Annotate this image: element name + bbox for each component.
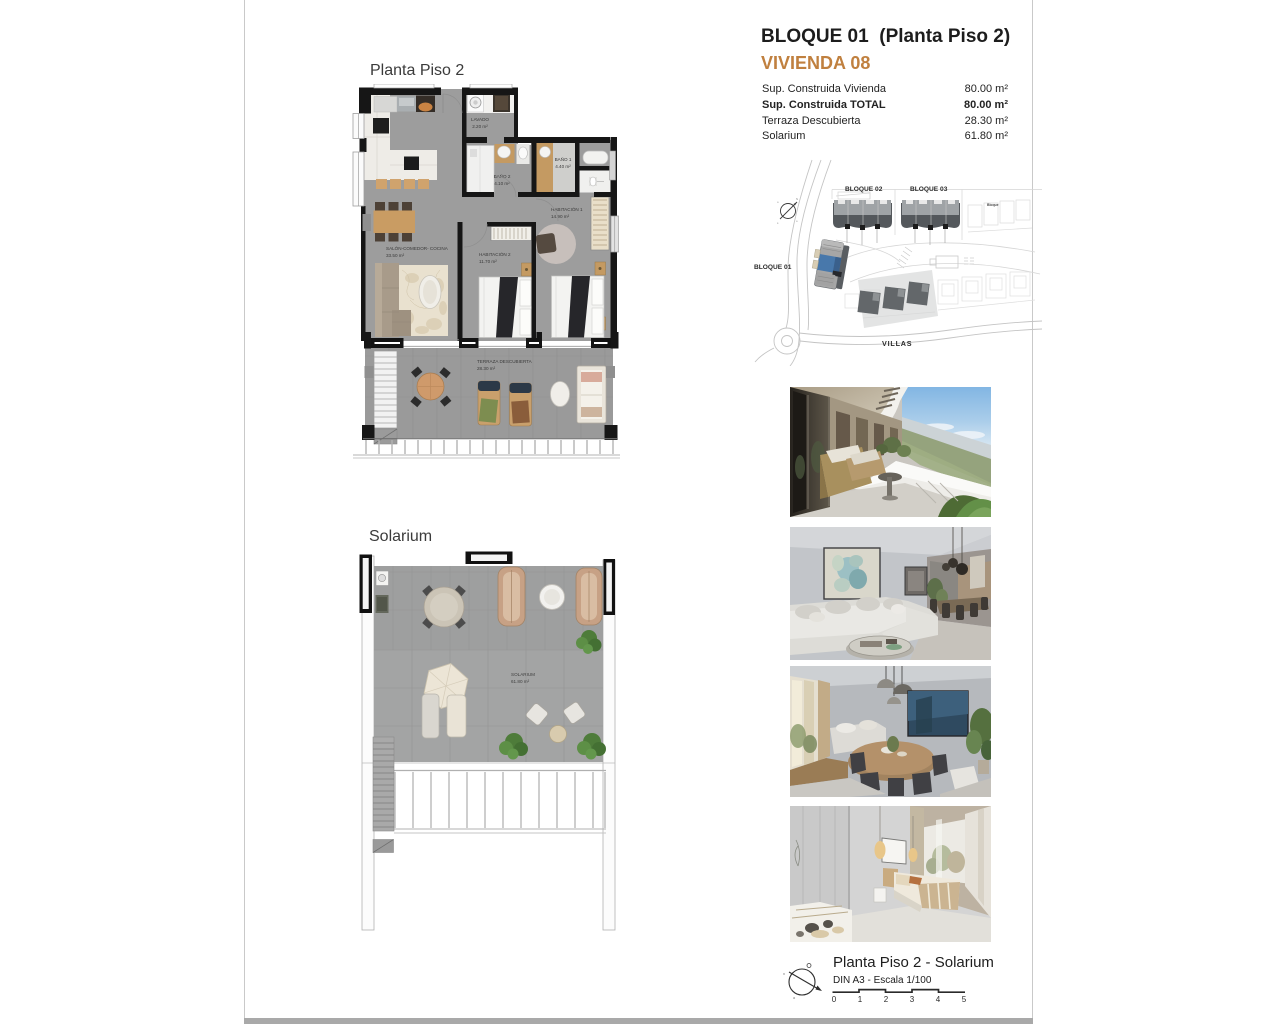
svg-text:28.30 m²: 28.30 m²	[477, 366, 496, 371]
svg-text:SOLARIUM: SOLARIUM	[511, 672, 535, 677]
svg-text:BLOQUE 01: BLOQUE 01	[754, 264, 792, 271]
svg-text:BLOQUE 02: BLOQUE 02	[845, 186, 883, 193]
svg-text:2.20 m²: 2.20 m²	[472, 124, 488, 129]
svg-text:HABITACIÓN 2: HABITACIÓN 2	[479, 251, 511, 257]
svg-text:4: 4	[936, 995, 941, 1004]
svg-text:x: x	[783, 971, 785, 976]
svg-text:2: 2	[884, 995, 889, 1004]
svg-text:Bloque: Bloque	[987, 203, 999, 207]
svg-text:14.90 m²: 14.90 m²	[551, 214, 570, 219]
svg-text:N: N	[796, 197, 798, 201]
svg-text:VILLAS: VILLAS	[882, 339, 912, 348]
svg-text:4.40 m²: 4.40 m²	[555, 164, 571, 169]
svg-text:o: o	[793, 995, 796, 1000]
svg-text:LAVADO: LAVADO	[471, 117, 489, 122]
svg-text:3: 3	[910, 995, 915, 1004]
svg-text:o: o	[796, 219, 798, 223]
svg-text:11.70 m²: 11.70 m²	[479, 259, 497, 264]
svg-text:1: 1	[858, 995, 863, 1004]
svg-text:SALÓN-COMEDOR- COCINA: SALÓN-COMEDOR- COCINA	[386, 245, 449, 251]
svg-text:5: 5	[962, 995, 967, 1004]
svg-text:BAÑO 1: BAÑO 1	[555, 156, 572, 162]
svg-text:33.50 m²: 33.50 m²	[386, 253, 405, 258]
svg-text:4.10 m²: 4.10 m²	[494, 181, 510, 186]
svg-text:61.80 m²: 61.80 m²	[511, 679, 530, 684]
svg-text:TERRAZA DESCUBIERTA: TERRAZA DESCUBIERTA	[477, 359, 533, 364]
svg-text:s: s	[777, 221, 779, 225]
svg-text:o: o	[777, 200, 779, 204]
svg-text:0: 0	[832, 995, 837, 1004]
svg-text:BLOQUE 03: BLOQUE 03	[910, 186, 948, 193]
